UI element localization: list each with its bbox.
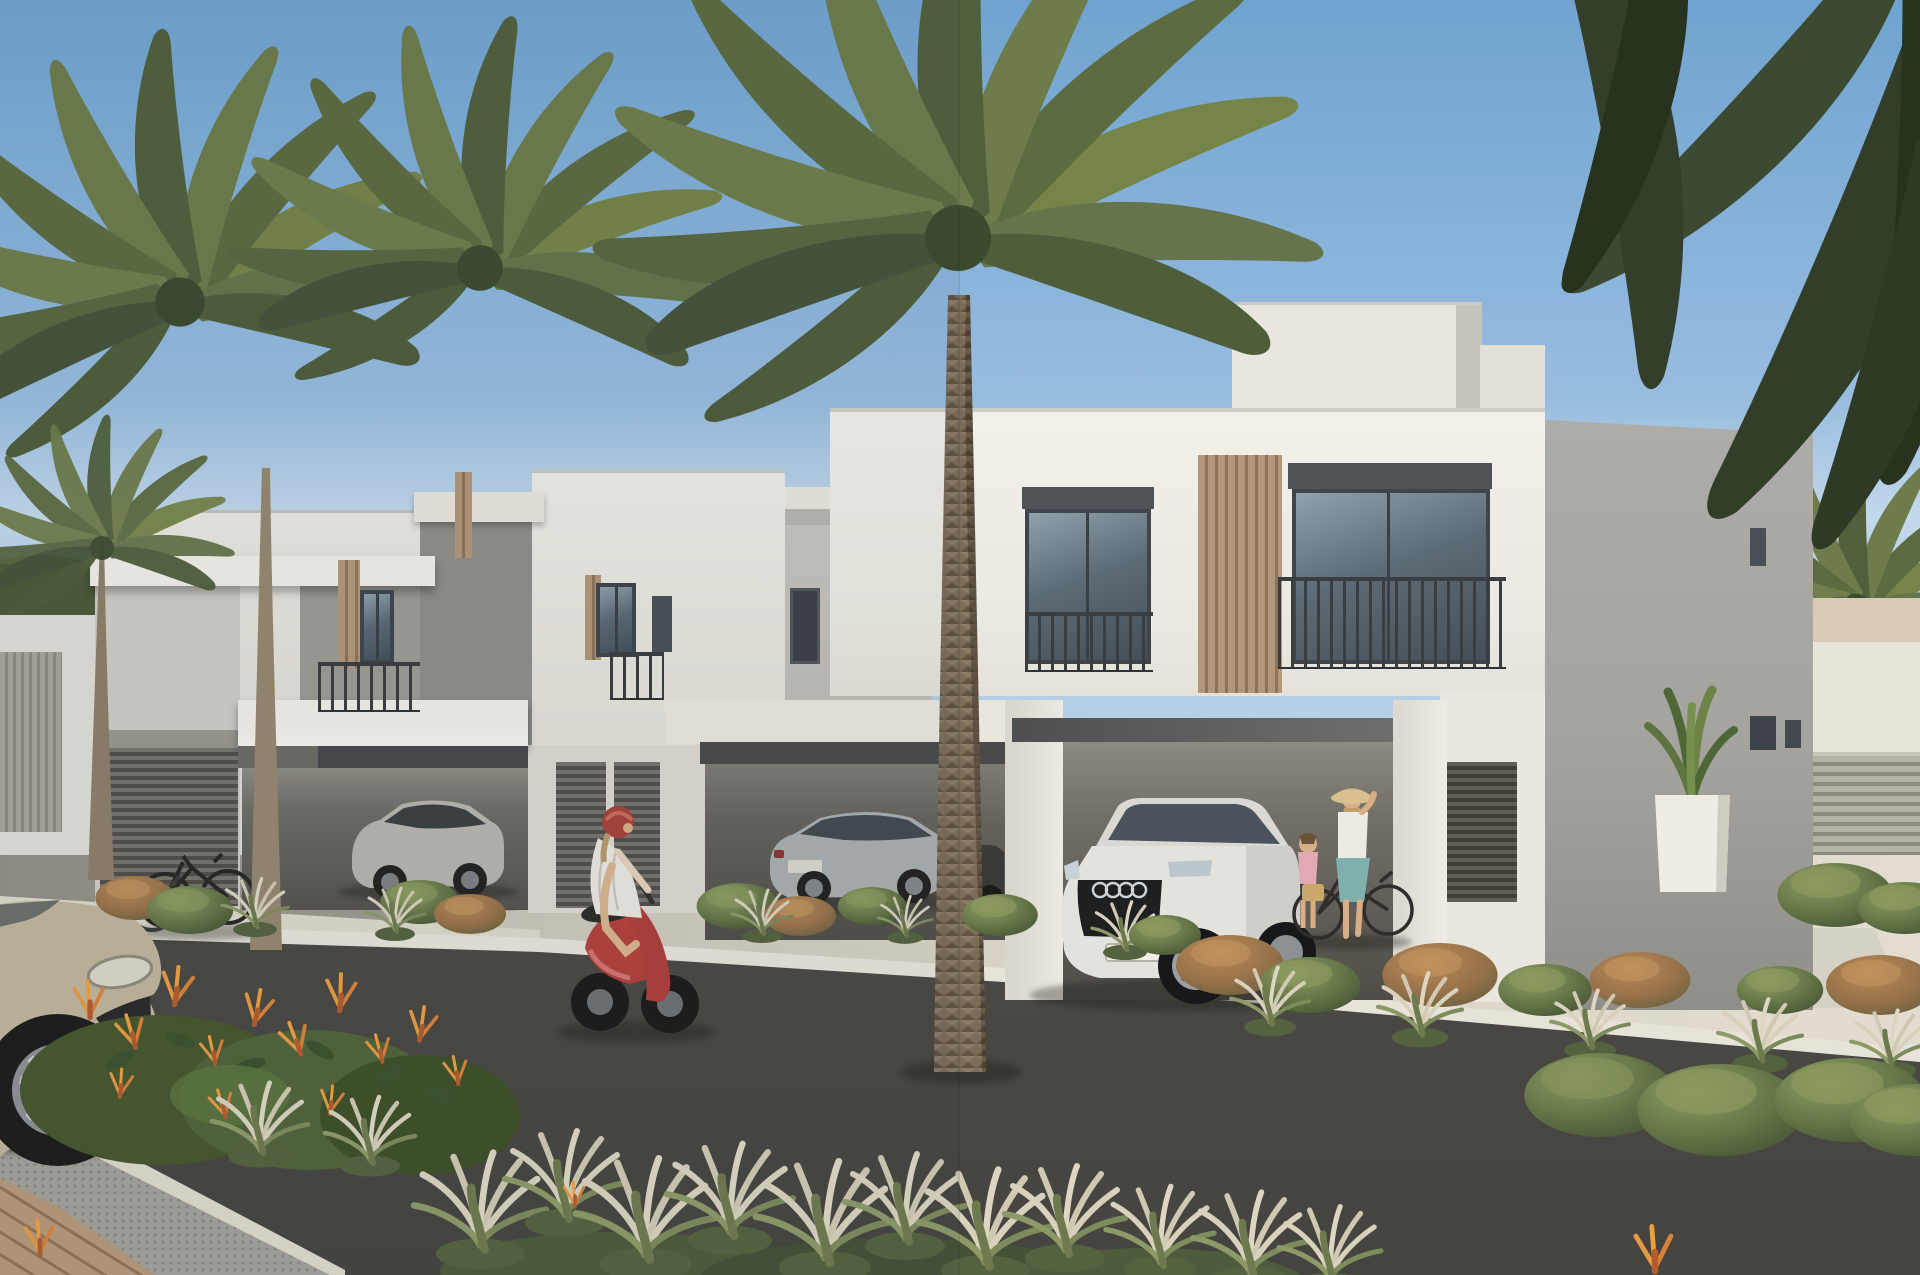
scooter-rider (571, 806, 699, 1033)
central-palm-trunk (934, 295, 986, 1072)
scene (0, 0, 1920, 1275)
child (1298, 833, 1318, 928)
corner-fronds (1475, 0, 1920, 559)
sunlit-bushes-right (1524, 1053, 1920, 1271)
foreground-layer (0, 0, 1920, 1275)
potted-plant (1648, 690, 1734, 892)
